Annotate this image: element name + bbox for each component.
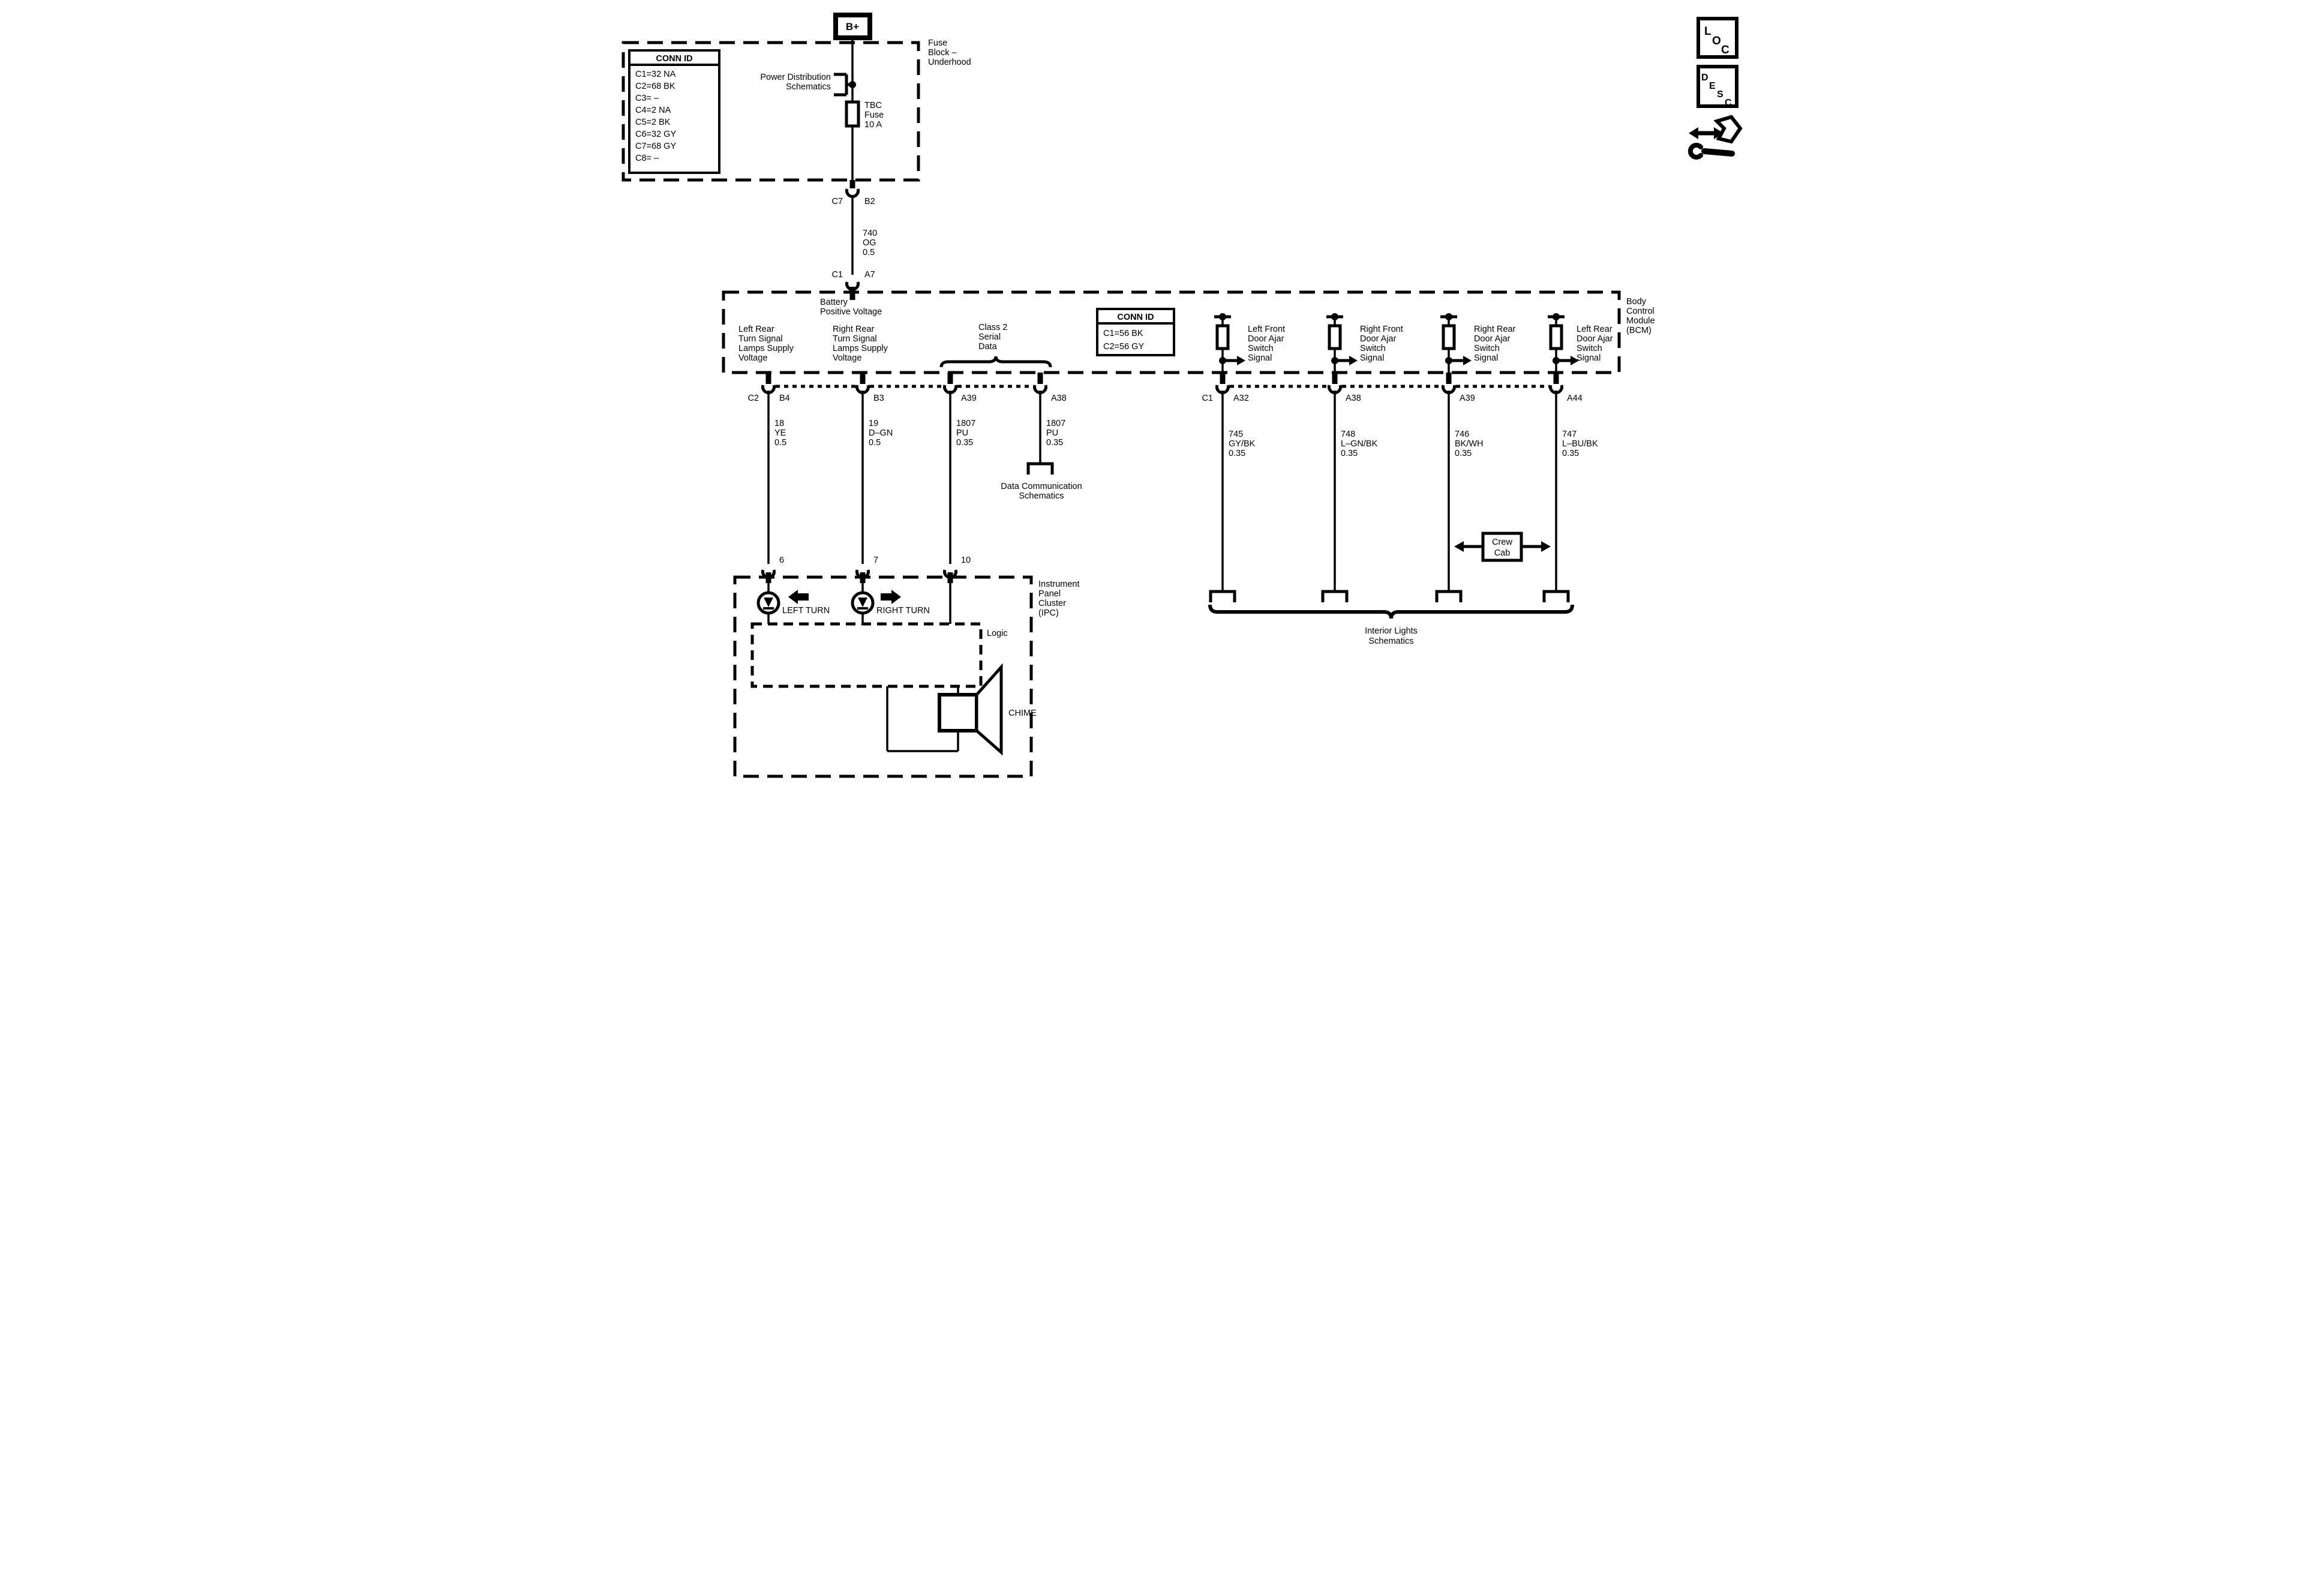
wire-748-label-1: 748 [1341,430,1355,439]
left-rear-ts-2: Turn Signal [738,334,783,344]
ipc-pin-10: 10 [961,556,971,565]
pin-c7: C7 [831,197,843,206]
crew-cab-right-arrowhead [1541,541,1551,552]
wire-740-label-3: 0.5 [863,248,875,257]
bcm-connector-row: C2 B4 B3 A39 A38 C1 A32 A38 A39 A44 [747,373,1582,403]
crew-cab-label-2: Cab [1494,548,1510,558]
b-plus-label: B+ [845,21,858,32]
connector-symbol-c7-b2 [846,189,858,197]
rr-door-label-1: Right Rear [1474,325,1515,334]
battery-positive-label-2: Positive Voltage [820,307,882,317]
offpage-bracket-data-comm [1028,464,1052,475]
ipc-label-1: Instrument [1038,580,1080,589]
conn-row-c4: C4=2 NA [635,106,671,115]
rf-door-label-2: Door Ajar [1360,334,1397,344]
wire-1807a-label-3: 0.35 [956,438,973,448]
tbc-fuse-label-3: 10 A [864,120,882,130]
wiring-diagram-canvas: L O C D E S C Fuse Block – Underhood B+ … [581,0,1743,786]
tbc-fuse-label-1: TBC [864,101,882,110]
left-turn-label: LEFT TURN [782,606,830,616]
right-rear-ts-3: Lamps Supply [833,344,888,353]
right-rear-ts-2: Turn Signal [833,334,877,344]
offpage-bracket [1211,592,1235,602]
body-control-module: Body Control Module (BCM) Battery Positi… [723,292,1655,373]
interior-lights-ref-2: Schematics [1368,637,1413,646]
offpage-bracket [1437,592,1461,602]
signal-arrow-head [1463,356,1472,365]
wire-745-label-3: 0.35 [1229,449,1245,458]
conn-row-c2: C2=68 BK [635,82,675,91]
jump-outline-arrow [1717,117,1740,142]
tbc-fuse-label-2: Fuse [864,110,884,120]
left-rear-ts-3: Lamps Supply [738,344,794,353]
wire-746-label-1: 746 [1455,430,1469,439]
wire-745-label-1: 745 [1229,430,1243,439]
pin-a32: A32 [1233,394,1249,403]
left-rear-ts-4: Voltage [738,353,767,363]
conn-label-c1: C1 [1202,394,1213,403]
wire-746-label-3: 0.35 [1455,449,1472,458]
interior-lights-brace [1210,605,1572,619]
wire-746-label-2: BK/WH [1455,439,1484,449]
class2-label-3: Data [978,342,998,352]
wire-748-label-3: 0.35 [1341,449,1358,458]
wire-18-label-1: 18 [774,419,784,428]
lf-door-label-2: Door Ajar [1248,334,1284,344]
bcm-label-3: Module [1626,316,1655,326]
wire-745-label-2: GY/BK [1229,439,1256,449]
power-dist-ref-2: Schematics [786,82,831,92]
right-turn-arrow-icon [881,590,901,604]
legend-icons: L O C D E S C [1689,19,1740,157]
right-turn-indicator: RIGHT TURN [852,583,930,624]
wiring-diagram-page: L O C D E S C Fuse Block – Underhood B+ … [581,0,1743,786]
lf-door-label-3: Switch [1248,344,1274,353]
conn-row-c7: C7=68 GY [635,142,676,151]
power-dist-ref-1: Power Distribution [760,73,831,82]
rr-door-label-4: Signal [1474,353,1498,363]
lf-door-label-1: Left Front [1248,325,1285,334]
right-rear-ts-1: Right Rear [833,325,874,334]
conn-row-c8: C8= – [635,154,659,163]
loc-letter-l: L [1704,25,1712,38]
pin-a44: A44 [1567,394,1583,403]
wire-18-label-3: 0.5 [774,438,786,448]
loc-letter-o: O [1712,35,1721,47]
rr-door-label-3: Switch [1474,344,1500,353]
lf-door-label-4: Signal [1248,353,1272,363]
feed-wire-740: C7 B2 740 OG 0.5 C1 A7 [831,180,877,300]
offpage-bracket [1323,592,1347,602]
wire-19-label-2: D–GN [869,428,893,438]
desc-letter-e: E [1709,81,1716,91]
data-comm-ref-1: Data Communication [1001,482,1082,491]
crew-cab-callout: Crew Cab [1454,533,1551,560]
crew-cab-label-1: Crew [1492,538,1512,547]
fuse-block-label-1: Fuse [928,38,947,48]
wire-18-label-2: YE [774,428,786,438]
door-ajar-input-rf: Right Front Door Ajar Switch Signal [1326,313,1403,373]
rf-door-label-4: Signal [1360,353,1384,363]
class2-brace [941,356,1050,367]
ipc-label-4: (IPC) [1038,608,1059,618]
right-turn-label: RIGHT TURN [876,606,930,616]
pin-a38-right: A38 [1346,394,1361,403]
logic-label: Logic [987,629,1008,638]
bcm-conn-id-header: CONN ID [1117,313,1154,322]
door-ajar-input-lr: Left Rear Door Ajar Switch Signal [1548,313,1613,373]
wire-1807a-label-1: 1807 [956,419,975,428]
resistor-symbol [1217,326,1228,349]
bcm-conn-row-c1: C1=56 BK [1103,329,1143,338]
ipc-label-2: Panel [1038,589,1061,599]
lr-door-label-3: Switch [1577,344,1602,353]
wire-1807b-label-2: PU [1046,428,1058,438]
battery-positive-label-1: Battery [820,298,848,307]
interior-lights-ref-1: Interior Lights [1365,626,1418,636]
conn-row-c6: C6=32 GY [635,130,676,139]
bcm-label-4: (BCM) [1626,326,1652,335]
class2-label-2: Serial [978,332,1001,342]
left-turn-arrow-icon [788,590,809,604]
chime-label: CHIME [1008,709,1037,718]
lr-door-label-4: Signal [1577,353,1601,363]
rf-door-label-1: Right Front [1360,325,1403,334]
wire-748-label-2: L–GN/BK [1341,439,1378,449]
offpage-bracket [1544,592,1568,602]
pin-b4: B4 [779,394,790,403]
junction-dot-power-dist [849,81,856,88]
conn-id-header: CONN ID [656,54,692,64]
logic-box [752,624,981,686]
pin-a39-right: A39 [1460,394,1475,403]
fuse-block-underhood: Fuse Block – Underhood B+ CONN ID C1=32 … [623,15,971,180]
door-ajar-input-lf: Left Front Door Ajar Switch Signal [1214,313,1285,373]
wire-747-label-3: 0.35 [1562,449,1579,458]
chime-speaker: CHIME [887,667,1037,752]
wire-19-label-3: 0.5 [869,438,881,448]
wire-740-label-1: 740 [863,229,877,238]
bcm-conn-row-c2: C2=56 GY [1103,342,1144,352]
bcm-label-1: Body [1626,297,1647,307]
instrument-panel-cluster: 6 7 10 Instrument Panel Cluster (IPC) LE… [735,556,1080,776]
signal-arrow-head [1349,356,1358,365]
wrench-icon [1690,145,1700,157]
wire-740-label-2: OG [863,238,876,248]
class2-label-1: Class 2 [978,323,1007,332]
jump-arrow-left-head [1689,127,1698,139]
rr-door-label-2: Door Ajar [1474,334,1511,344]
resistor-symbol [1443,326,1454,349]
desc-letter-s: S [1717,89,1724,100]
bcm-label-2: Control [1626,307,1655,316]
pin-c1: C1 [831,270,843,280]
ipc-label-3: Cluster [1038,599,1066,608]
lr-door-label-2: Door Ajar [1577,334,1613,344]
conn-label-c2: C2 [747,394,759,403]
pin-a39-left: A39 [961,394,977,403]
fuse-block-label-3: Underhood [928,58,971,67]
conn-row-c5: C5=2 BK [635,118,671,127]
wire-747-label-1: 747 [1562,430,1577,439]
right-rear-ts-4: Voltage [833,353,861,363]
wire-1807b-label-1: 1807 [1046,419,1065,428]
wire-19-label-1: 19 [869,419,878,428]
door-ajar-input-rr: Right Rear Door Ajar Switch Signal [1440,313,1515,373]
ipc-pin-6: 6 [779,556,784,565]
pin-a7: A7 [864,270,875,280]
wire-1807b-label-3: 0.35 [1046,438,1063,448]
wire-1807a-label-2: PU [956,428,968,438]
left-rear-ts-1: Left Rear [738,325,774,334]
fuse-block-label-2: Block – [928,48,957,58]
signal-arrow-head [1237,356,1245,365]
left-turn-indicator: LEFT TURN [758,583,830,624]
left-output-wires: 18 YE 0.5 19 D–GN 0.5 1807 PU 0.35 1807 … [768,391,1082,564]
pin-b2: B2 [864,197,875,206]
right-door-ajar-wires: 745 GY/BK 0.35 748 L–GN/BK 0.35 746 BK/W… [1210,391,1598,646]
wire-747-label-2: L–BU/BK [1562,439,1598,449]
loc-letter-c: C [1721,44,1730,56]
component-jump-icon [1689,117,1740,157]
conn-row-c3: C3= – [635,94,659,103]
resistor-symbol [1329,326,1340,349]
lr-door-label-1: Left Rear [1577,325,1613,334]
ipc-pin-7: 7 [873,556,878,565]
data-comm-ref-2: Schematics [1019,491,1064,501]
rf-door-label-3: Switch [1360,344,1386,353]
pin-b3: B3 [873,394,884,403]
pin-a38-left: A38 [1051,394,1067,403]
resistor-symbol [1551,326,1562,349]
speaker-body [939,695,977,731]
wrench-handle [1704,151,1732,154]
desc-letter-d: D [1701,73,1709,83]
desc-letter-c: C [1725,98,1732,108]
tbc-fuse-symbol [846,102,858,126]
conn-row-c1: C1=32 NA [635,70,676,79]
